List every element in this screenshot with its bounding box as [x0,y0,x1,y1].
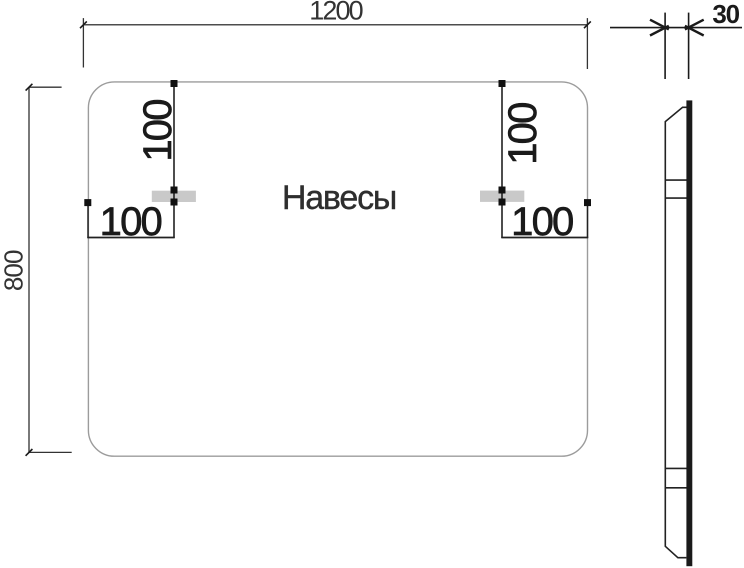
svg-text:800: 800 [0,250,29,291]
svg-text:100: 100 [136,100,180,162]
svg-text:100: 100 [511,200,573,244]
svg-text:Навесы: Навесы [282,179,396,217]
svg-text:30: 30 [712,0,739,29]
svg-text:100: 100 [501,103,545,165]
svg-text:100: 100 [100,200,162,244]
svg-text:1200: 1200 [309,0,362,26]
